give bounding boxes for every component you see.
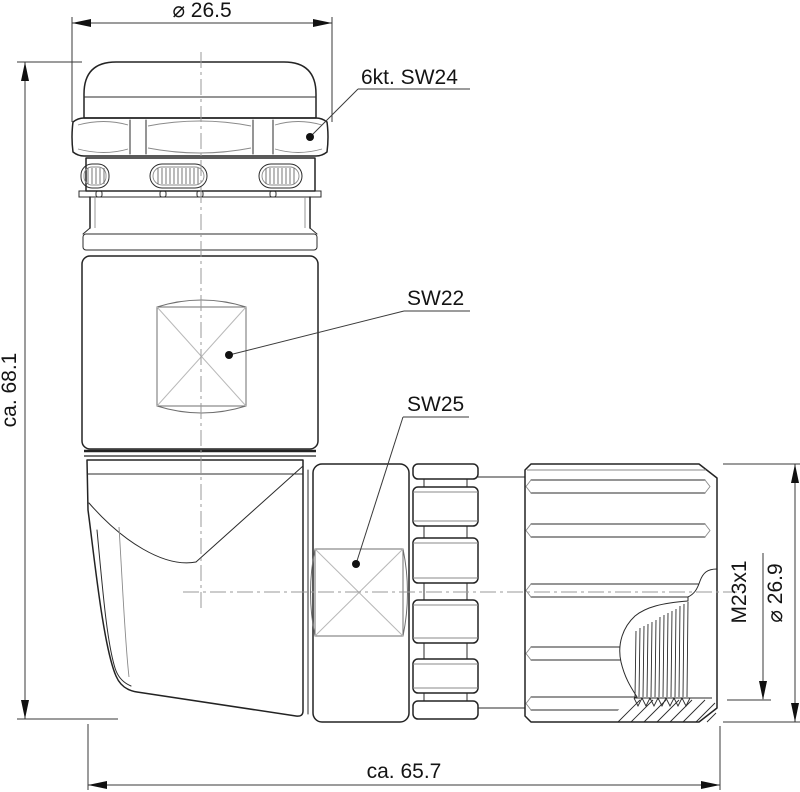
leader-dot bbox=[225, 351, 233, 359]
callout-hex-nut: 6kt. SW24 bbox=[306, 66, 470, 141]
dim-overall-height-label: ca. 68.1 bbox=[0, 353, 21, 428]
cable-gland-cap bbox=[84, 62, 316, 118]
dim-overall-height: ca. 68.1 bbox=[0, 62, 118, 719]
callout-sw22: SW22 bbox=[225, 287, 470, 359]
knurl-hatch bbox=[88, 168, 294, 184]
dim-top-diameter-label: ⌀ 26.5 bbox=[172, 0, 231, 22]
main-body bbox=[82, 256, 318, 456]
centerlines bbox=[183, 52, 737, 612]
neck-and-collar bbox=[83, 197, 317, 250]
coupling-hex-sw25 bbox=[311, 464, 410, 722]
dim-top-diameter: ⌀ 26.5 bbox=[72, 0, 332, 122]
coupling-nut bbox=[525, 464, 717, 722]
elbow-housing bbox=[87, 460, 308, 716]
callout-sw22-label: SW22 bbox=[407, 287, 464, 310]
callout-sw25-label: SW25 bbox=[407, 393, 464, 416]
dim-end-diameter-label: ⌀ 26.9 bbox=[764, 563, 787, 622]
knurl-band bbox=[79, 158, 321, 197]
dim-overall-length-label: ca. 65.7 bbox=[367, 760, 442, 783]
callout-hex-nut-label: 6kt. SW24 bbox=[361, 66, 458, 89]
leader-dot bbox=[306, 133, 314, 141]
technical-drawing-page: ⌀ 26.5 ca. 68.1 ca. 65.7 M23x1 ⌀ 26.9 6k… bbox=[0, 0, 800, 792]
dim-thread-label: M23x1 bbox=[728, 560, 751, 623]
dim-overall-length: ca. 65.7 bbox=[88, 724, 720, 790]
technical-drawing-canvas: ⌀ 26.5 ca. 68.1 ca. 65.7 M23x1 ⌀ 26.9 6k… bbox=[0, 0, 800, 792]
hex-nut-sw24 bbox=[72, 118, 328, 156]
leader-dot bbox=[352, 560, 360, 568]
